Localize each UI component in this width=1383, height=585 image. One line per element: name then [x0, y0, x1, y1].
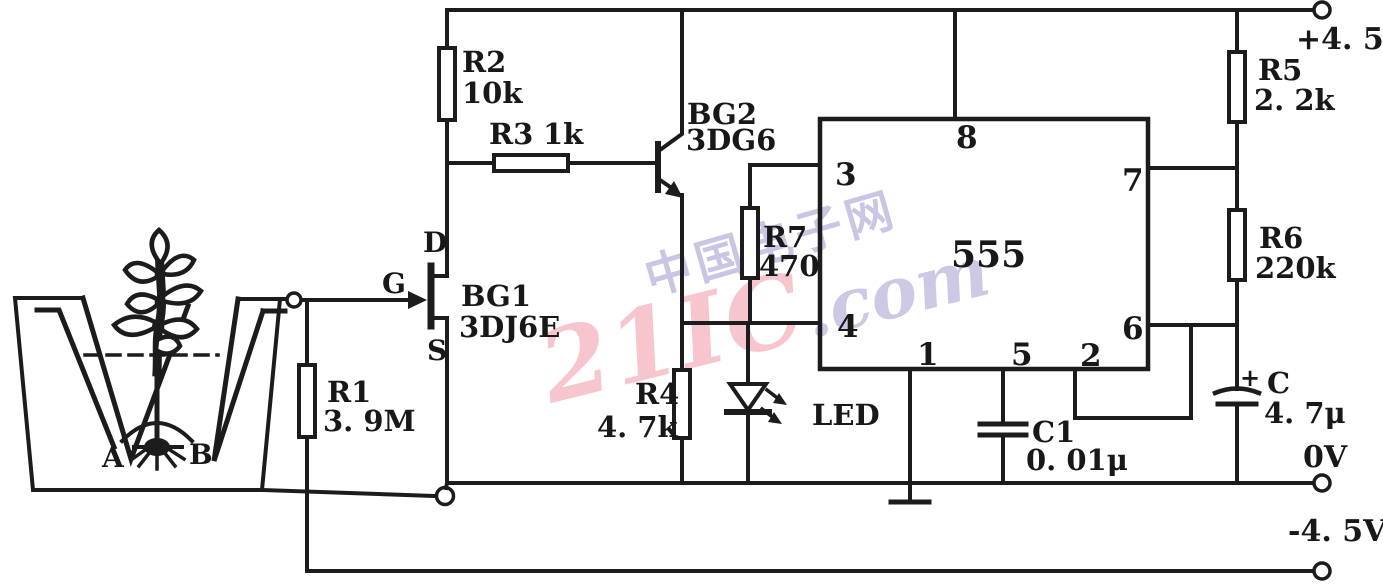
label-ic555: 555 — [951, 234, 1026, 276]
led-triangle — [730, 384, 766, 410]
probe-terminal-stub — [446, 483, 447, 488]
label-pin8: 8 — [956, 120, 978, 156]
bg1-gate-arrow — [408, 291, 427, 309]
resistor-r1-body — [299, 365, 315, 437]
bg2-emitter-wire — [660, 180, 682, 370]
label-c1-value: C1 — [1032, 415, 1075, 449]
circuit-schematic: R2 10k R3 1k R1 3. 9M R4 4. 7k R5 2. 2k … — [0, 0, 1383, 585]
label-power-neg: -4. 5V — [1288, 514, 1383, 549]
label-r1-value: 3. 9M — [323, 404, 416, 438]
label-pin1: 1 — [917, 337, 939, 373]
resistor-r6-body — [1229, 210, 1245, 280]
resistor-r7-body — [742, 208, 758, 278]
negative-rail-wire — [307, 437, 1314, 571]
label-pin2: 2 — [1080, 338, 1102, 374]
label-bg1-model: 3DJ6E — [459, 310, 560, 344]
label-r3-ref: R3 — [489, 117, 533, 151]
label-r4-ref: R4 — [635, 377, 679, 411]
label-pin6: 6 — [1122, 311, 1144, 347]
terminal-positive — [1314, 2, 1330, 18]
label-r6-ref: R6 — [1259, 221, 1303, 255]
resistor-r3-body — [494, 155, 568, 171]
label-r6-value: 220k — [1255, 251, 1337, 285]
label-r2-value: 10k — [462, 76, 523, 110]
label-power-pos: +4. 5V — [1296, 22, 1383, 57]
label-pin3: 3 — [835, 157, 857, 193]
probe-bottom-wire — [262, 490, 436, 496]
label-probe-b: B — [189, 438, 213, 471]
electrode-plate-a-inner — [37, 310, 114, 447]
label-r5-ref: R5 — [1258, 53, 1302, 87]
label-pin4: 4 — [837, 309, 859, 345]
label-power-gnd: 0V — [1303, 440, 1348, 475]
label-c-ref: C — [1267, 366, 1290, 400]
label-pin7: 7 — [1122, 163, 1144, 199]
terminal-negative — [1314, 563, 1330, 579]
label-pin5: 5 — [1011, 337, 1033, 373]
terminal-probe-source — [437, 488, 454, 505]
plant — [114, 230, 201, 469]
label-r5-value: 2. 2k — [1254, 83, 1336, 117]
label-c-value: 4. 7μ — [1264, 396, 1346, 430]
label-r7-value: 470 — [759, 249, 820, 283]
label-c-polarity: + — [1240, 363, 1260, 392]
label-bg1-drain: D — [423, 226, 447, 259]
label-bg2-model: 3DG6 — [686, 123, 776, 157]
led-light-arrows — [762, 390, 787, 424]
terminal-zero — [1314, 475, 1330, 491]
electrode-plate-b — [214, 299, 263, 461]
resistor-r2-body — [439, 48, 455, 120]
bg2-collector-wire — [660, 10, 682, 150]
labels: R2 10k R3 1k R1 3. 9M R4 4. 7k R5 2. 2k … — [101, 22, 1383, 549]
resistor-r5-body — [1229, 52, 1245, 122]
label-led: LED — [812, 398, 880, 432]
schematic-page: 中国电子网 21IC.com — [0, 0, 1383, 585]
label-bg1-ref: BG1 — [461, 279, 531, 313]
label-r3-value: 1k — [543, 117, 584, 151]
label-bg1-source: S — [427, 334, 447, 367]
label-probe-a: A — [101, 441, 125, 474]
label-r2-ref: R2 — [462, 45, 506, 79]
ground-symbol — [891, 483, 929, 502]
terminal-probe-gate — [287, 293, 301, 307]
label-r4-value: 4. 7k — [597, 410, 679, 444]
label-bg1-gate: G — [382, 267, 406, 300]
